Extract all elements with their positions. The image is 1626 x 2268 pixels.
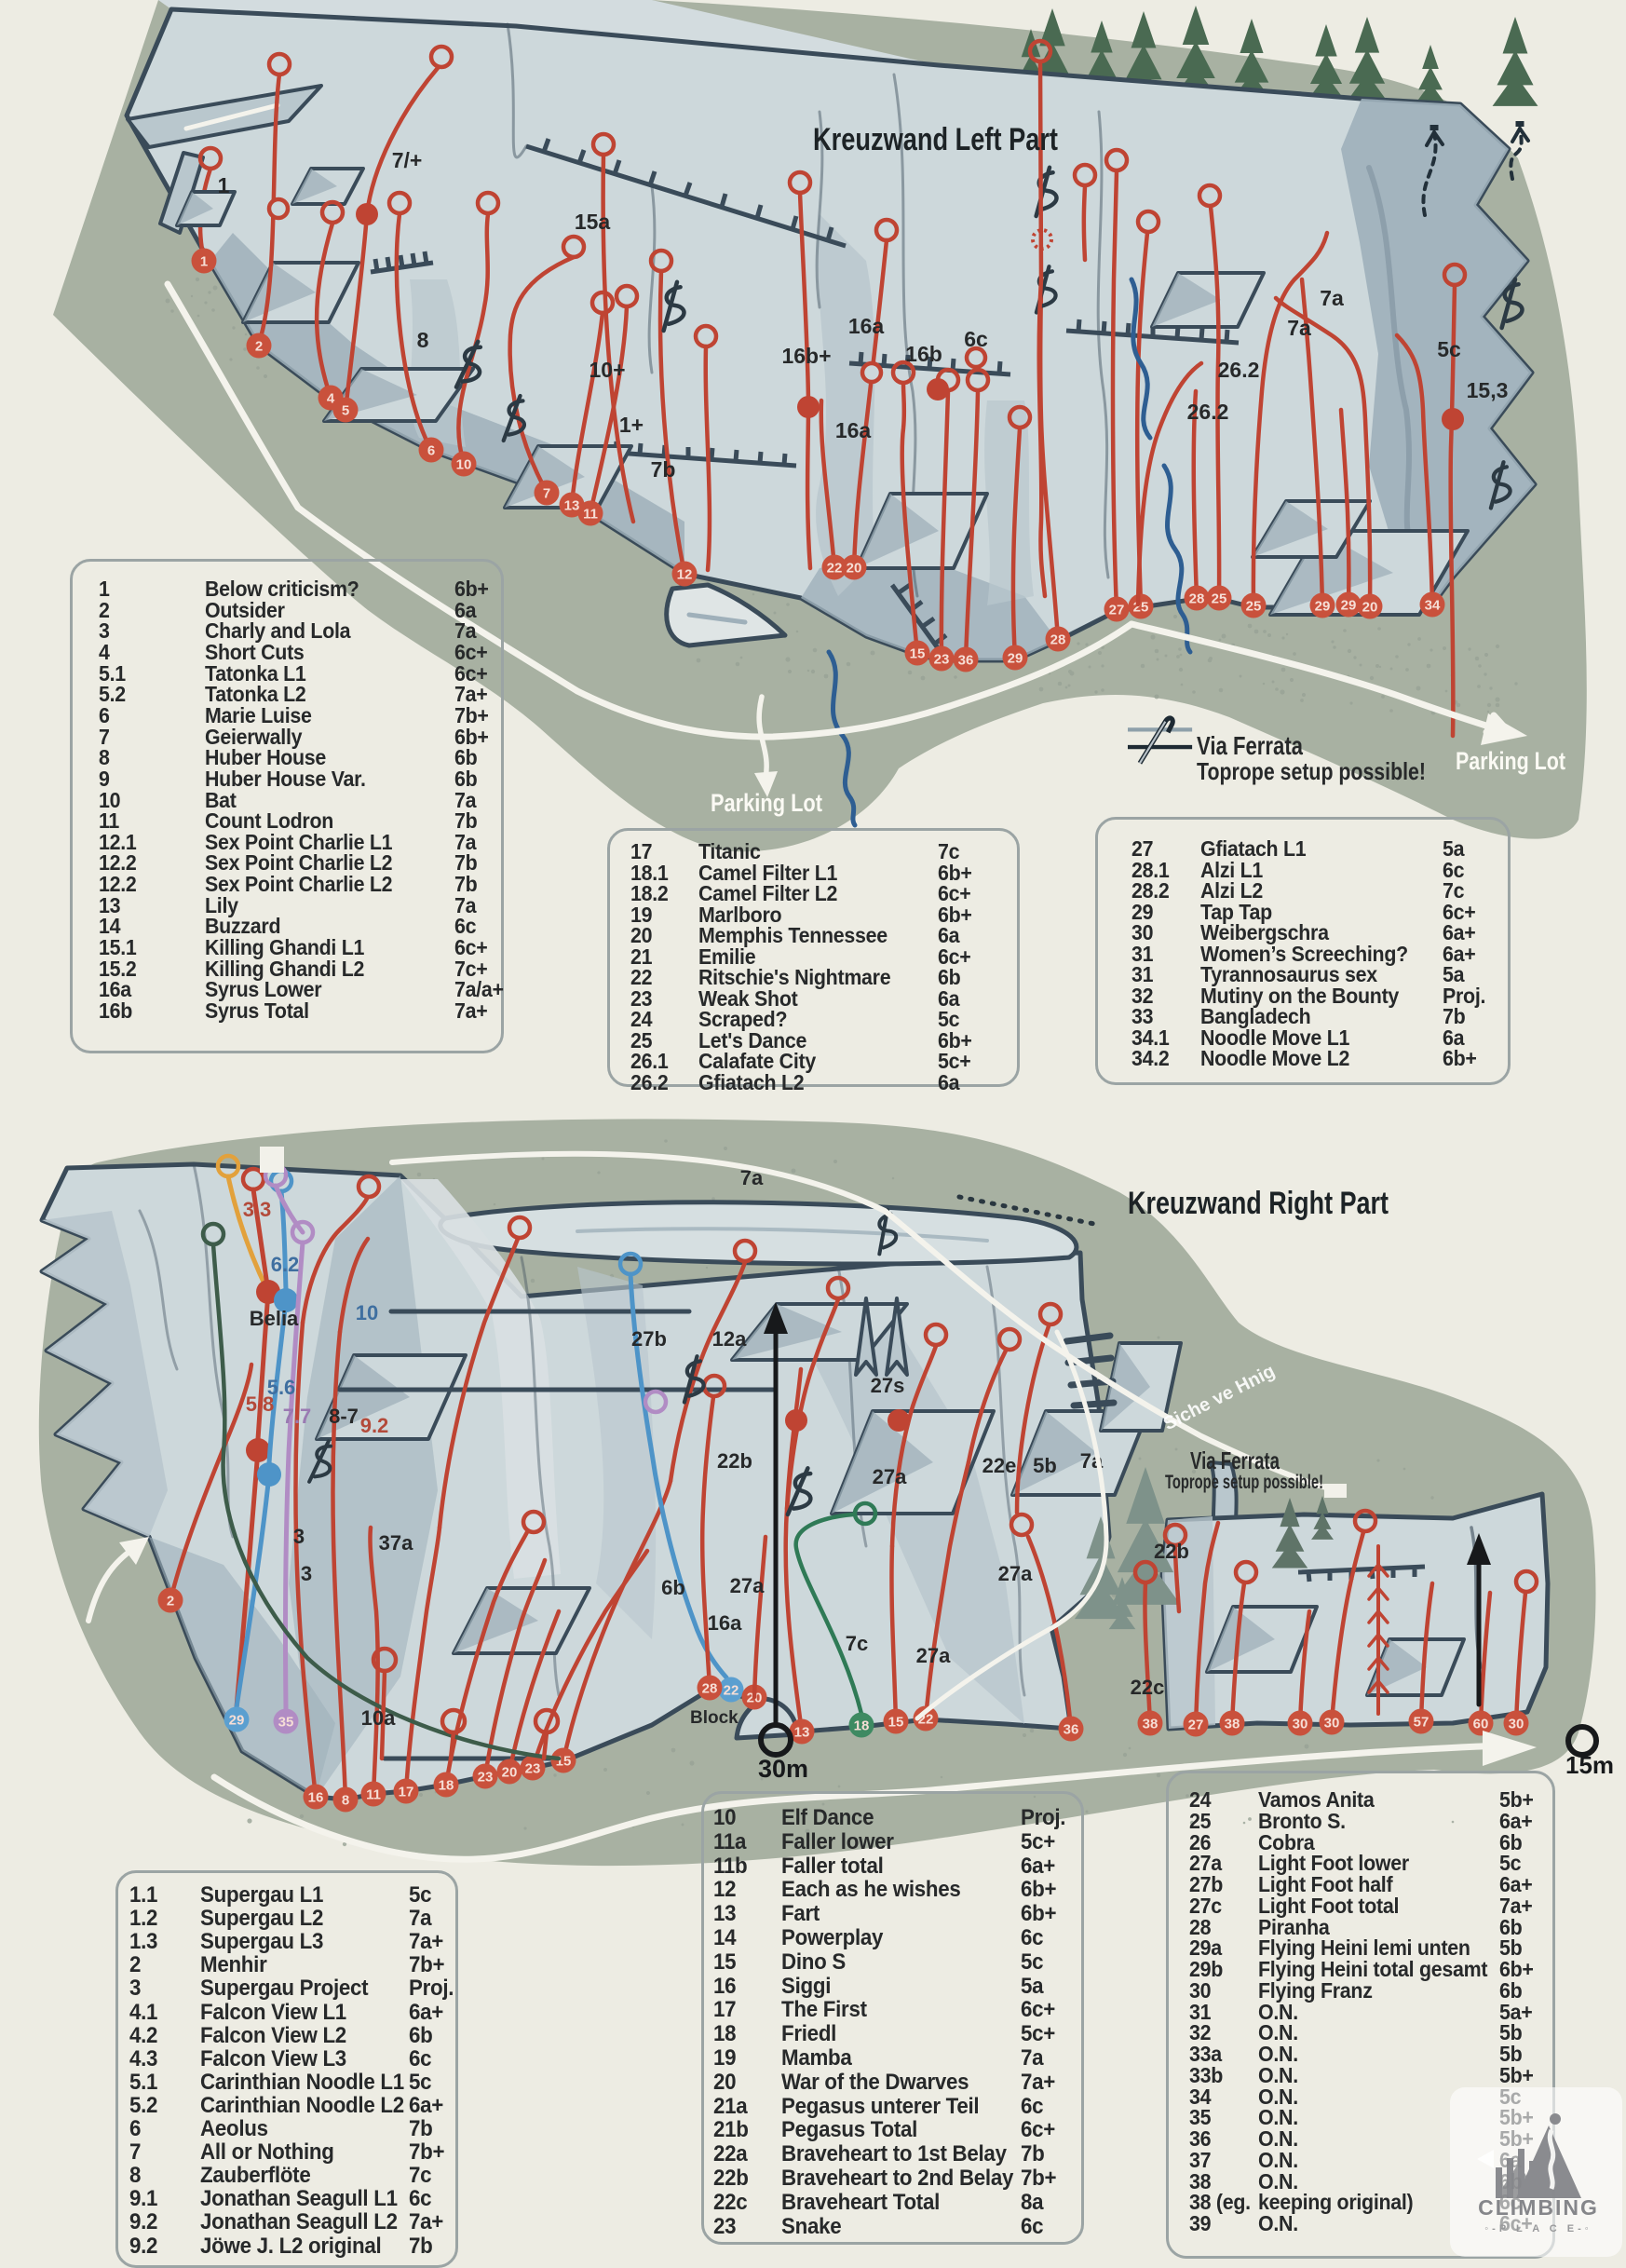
svg-text:16a: 16a bbox=[708, 1611, 742, 1635]
svg-text:3: 3 bbox=[301, 1562, 312, 1585]
svg-text:22b: 22b bbox=[717, 1449, 752, 1473]
svg-text:3: 3 bbox=[293, 1525, 305, 1548]
svg-text:7: 7 bbox=[543, 485, 550, 501]
svg-text:28: 28 bbox=[1050, 632, 1066, 647]
svg-text:25: 25 bbox=[1133, 599, 1149, 615]
svg-text:8: 8 bbox=[417, 328, 429, 352]
svg-text:26.2: 26.2 bbox=[1218, 358, 1260, 382]
svg-text:13: 13 bbox=[794, 1724, 810, 1740]
svg-text:5.8: 5.8 bbox=[246, 1392, 275, 1416]
svg-text:3.3: 3.3 bbox=[243, 1198, 272, 1221]
svg-text:23: 23 bbox=[525, 1760, 541, 1776]
svg-text:22b: 22b bbox=[1154, 1540, 1189, 1563]
svg-text:1: 1 bbox=[218, 173, 230, 197]
svg-text:29: 29 bbox=[1341, 597, 1357, 613]
svg-text:6c: 6c bbox=[964, 327, 988, 351]
svg-text:10: 10 bbox=[456, 456, 472, 472]
svg-text:7.7: 7.7 bbox=[283, 1405, 312, 1428]
svg-text:18: 18 bbox=[854, 1718, 870, 1733]
svg-text:8-7: 8-7 bbox=[329, 1405, 359, 1428]
svg-text:12: 12 bbox=[677, 566, 693, 582]
svg-text:15: 15 bbox=[556, 1753, 572, 1769]
svg-text:Kreuzwand Left Part: Kreuzwand Left Part bbox=[813, 122, 1058, 157]
svg-text:7/+: 7/+ bbox=[392, 148, 423, 172]
svg-text:20: 20 bbox=[847, 560, 862, 576]
svg-text:22e: 22e bbox=[982, 1454, 1017, 1477]
svg-text:38: 38 bbox=[1143, 1716, 1159, 1732]
svg-text:15,3: 15,3 bbox=[1467, 378, 1509, 402]
svg-text:15: 15 bbox=[910, 645, 926, 661]
svg-text:30: 30 bbox=[1293, 1716, 1308, 1732]
svg-text:2: 2 bbox=[255, 338, 263, 354]
svg-text:16b: 16b bbox=[905, 342, 942, 366]
svg-text:23: 23 bbox=[934, 651, 950, 667]
svg-text:27a: 27a bbox=[730, 1574, 765, 1597]
svg-text:22c: 22c bbox=[1131, 1676, 1165, 1699]
svg-text:27b: 27b bbox=[631, 1327, 667, 1351]
svg-text:15: 15 bbox=[888, 1714, 904, 1730]
svg-text:36: 36 bbox=[1064, 1721, 1079, 1737]
svg-text:7a: 7a bbox=[1287, 316, 1311, 340]
svg-text:27s: 27s bbox=[871, 1374, 905, 1397]
svg-text:13: 13 bbox=[564, 497, 580, 513]
svg-text:12a: 12a bbox=[712, 1327, 747, 1351]
svg-text:25: 25 bbox=[1246, 598, 1262, 614]
svg-text:29: 29 bbox=[229, 1712, 245, 1728]
svg-text:29: 29 bbox=[1008, 650, 1023, 666]
svg-text:CLIMBING: CLIMBING bbox=[1478, 2195, 1599, 2220]
svg-text:5: 5 bbox=[342, 402, 349, 418]
svg-text:9.2: 9.2 bbox=[360, 1414, 389, 1437]
svg-text:15m: 15m bbox=[1565, 1751, 1614, 1779]
svg-text:57: 57 bbox=[1414, 1714, 1430, 1730]
svg-text:25: 25 bbox=[1212, 591, 1227, 606]
svg-text:27: 27 bbox=[1188, 1717, 1204, 1732]
svg-text:20: 20 bbox=[502, 1764, 518, 1780]
svg-text:16: 16 bbox=[308, 1789, 324, 1805]
svg-text:Kreuzwand Right Part: Kreuzwand Right Part bbox=[1128, 1186, 1389, 1221]
svg-text:36: 36 bbox=[958, 652, 974, 668]
svg-text:60: 60 bbox=[1473, 1716, 1489, 1732]
svg-text:11: 11 bbox=[366, 1786, 381, 1802]
svg-text:16a: 16a bbox=[835, 418, 872, 442]
svg-text:18: 18 bbox=[439, 1777, 454, 1793]
svg-text:27a: 27a bbox=[916, 1644, 951, 1667]
svg-text:◦-P L A C E-◦: ◦-P L A C E-◦ bbox=[1484, 2223, 1592, 2234]
svg-text:11: 11 bbox=[583, 506, 598, 522]
svg-text:34: 34 bbox=[1425, 597, 1441, 613]
svg-text:27a: 27a bbox=[873, 1465, 907, 1488]
svg-text:Via Ferrata: Via Ferrata bbox=[1197, 731, 1303, 760]
svg-text:27a: 27a bbox=[998, 1562, 1033, 1585]
svg-text:16b+: 16b+ bbox=[781, 344, 831, 368]
svg-text:10a: 10a bbox=[361, 1706, 396, 1730]
svg-text:20: 20 bbox=[1362, 599, 1378, 615]
svg-text:22: 22 bbox=[827, 560, 843, 576]
svg-text:Block: Block bbox=[690, 1708, 738, 1728]
svg-text:6: 6 bbox=[427, 442, 435, 458]
svg-text:30: 30 bbox=[1324, 1715, 1340, 1731]
svg-text:16a: 16a bbox=[848, 314, 885, 338]
svg-text:2: 2 bbox=[167, 1593, 174, 1609]
svg-text:Belia: Belia bbox=[250, 1307, 299, 1330]
svg-text:23: 23 bbox=[478, 1769, 494, 1785]
svg-text:29: 29 bbox=[1315, 598, 1331, 614]
svg-text:22: 22 bbox=[724, 1682, 739, 1698]
svg-text:5c: 5c bbox=[1437, 337, 1461, 361]
svg-text:Parking Lot: Parking Lot bbox=[1456, 747, 1565, 775]
svg-text:1: 1 bbox=[200, 253, 208, 269]
svg-text:6b: 6b bbox=[661, 1576, 685, 1599]
svg-text:35: 35 bbox=[278, 1714, 294, 1730]
svg-text:30m: 30m bbox=[758, 1755, 808, 1783]
svg-text:1+: 1+ bbox=[619, 413, 644, 437]
svg-text:28: 28 bbox=[1189, 591, 1205, 606]
svg-text:27: 27 bbox=[1109, 602, 1125, 618]
svg-text:Toprope setup possible!: Toprope setup possible! bbox=[1197, 757, 1426, 785]
svg-text:10: 10 bbox=[356, 1301, 378, 1324]
svg-text:30: 30 bbox=[1509, 1716, 1524, 1732]
svg-text:38: 38 bbox=[1225, 1716, 1240, 1732]
svg-text:10+: 10+ bbox=[589, 358, 625, 382]
svg-text:8: 8 bbox=[342, 1792, 349, 1808]
svg-text:Via Ferrata: Via Ferrata bbox=[1190, 1446, 1280, 1474]
svg-text:6.2: 6.2 bbox=[271, 1253, 300, 1276]
svg-text:Toprope setup possible!: Toprope setup possible! bbox=[1165, 1472, 1323, 1493]
svg-text:7c: 7c bbox=[846, 1632, 868, 1655]
svg-text:7a: 7a bbox=[1320, 286, 1344, 310]
svg-text:15a: 15a bbox=[575, 210, 611, 234]
svg-text:Parking Lot: Parking Lot bbox=[711, 789, 822, 817]
svg-text:5b: 5b bbox=[1033, 1454, 1057, 1477]
svg-text:4: 4 bbox=[327, 390, 335, 406]
svg-text:17: 17 bbox=[399, 1784, 414, 1799]
svg-text:37a: 37a bbox=[379, 1531, 413, 1555]
svg-text:26.2: 26.2 bbox=[1187, 400, 1229, 424]
svg-text:7b: 7b bbox=[651, 457, 676, 482]
svg-text:28: 28 bbox=[702, 1680, 718, 1696]
